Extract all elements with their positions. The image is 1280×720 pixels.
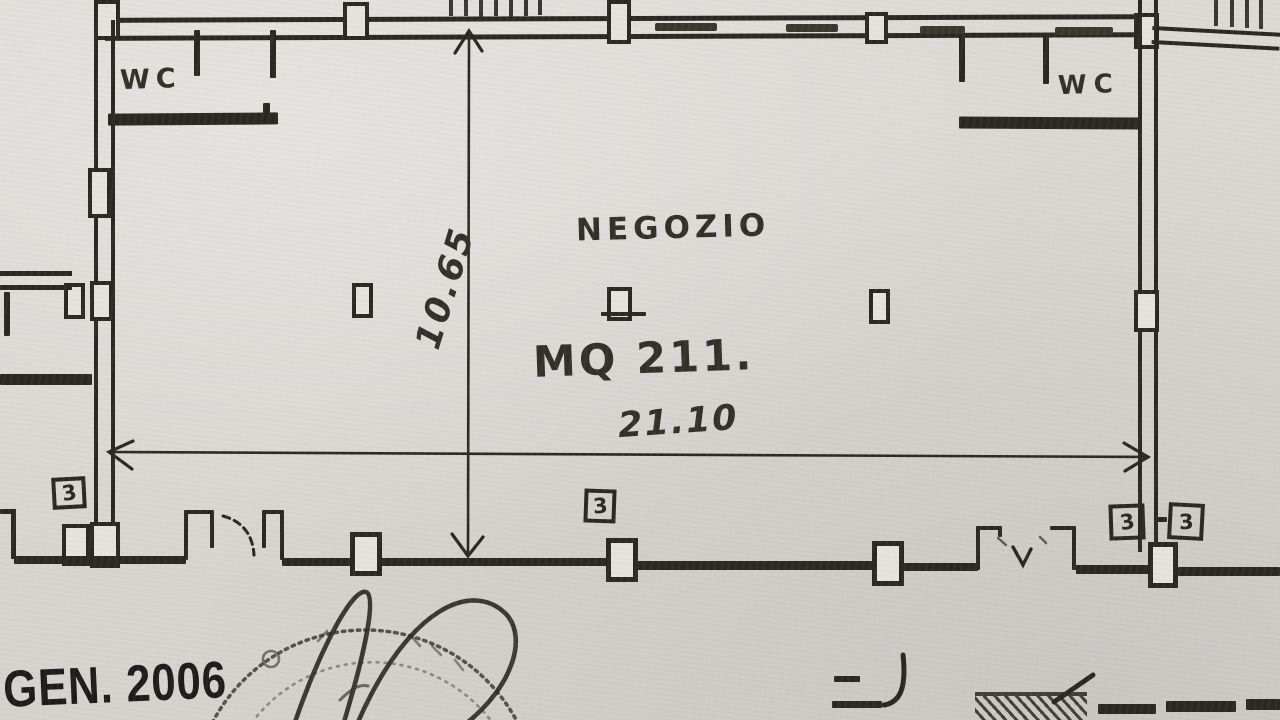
- floorplan-scan: 3 3 3 3: [0, 0, 1280, 720]
- fragment-bar: [832, 701, 882, 708]
- marker-label: 3: [60, 480, 78, 506]
- top-wall-window-dash: [920, 26, 965, 34]
- door-pier: [976, 528, 980, 570]
- marker-box-3: 3: [583, 488, 616, 523]
- interior-pillar: [869, 289, 890, 324]
- wc-left-partition-notch: [263, 103, 270, 115]
- door-swing-arc: [223, 516, 254, 555]
- hatch-tick: [524, 0, 528, 16]
- door-pier: [210, 512, 214, 548]
- hatch-tick: [1230, 0, 1234, 27]
- door-pier: [262, 512, 266, 548]
- signature-flourish: [295, 592, 516, 720]
- fragment-hook: [884, 655, 904, 705]
- bottom-wall-step: [11, 509, 16, 559]
- hatch-tick: [449, 0, 453, 16]
- bottom-wall-segment: [282, 558, 608, 566]
- pillar: [350, 532, 382, 576]
- door-pier: [184, 512, 188, 560]
- bottom-wall-segment: [902, 563, 978, 571]
- top-wall-right-extension: [1152, 26, 1280, 51]
- fragment-dash: [1166, 701, 1236, 712]
- pillar: [865, 12, 888, 44]
- pillar: [607, 0, 631, 44]
- hatch-tick: [1259, 0, 1263, 29]
- wc-right-label: WC: [1057, 69, 1120, 101]
- marker-box-3: 3: [1108, 503, 1145, 540]
- room-label: NEGOZIO: [576, 207, 771, 248]
- door-pier: [998, 526, 1002, 537]
- adjacent-wall-left: [0, 271, 72, 290]
- adjacent-wall-bar: [0, 374, 92, 385]
- marker-box-3: 3: [51, 476, 87, 510]
- hatch-tick: [538, 0, 542, 15]
- wc-left-label: WC: [119, 63, 182, 96]
- door-pier: [1072, 528, 1076, 570]
- wc-right-partition: [959, 117, 1141, 130]
- pillar: [343, 2, 369, 40]
- pillar: [606, 538, 638, 582]
- marker-label: 3: [592, 494, 608, 519]
- bottom-wall-segment: [636, 561, 876, 570]
- marker-label: 3: [1178, 509, 1194, 534]
- interior-fixture-bar: [601, 312, 646, 316]
- pillar: [1148, 542, 1178, 588]
- interior-pillar: [352, 283, 373, 318]
- notary-stamp: [193, 630, 537, 720]
- wc-left-stub: [270, 30, 276, 78]
- top-wall-window-dash: [1055, 27, 1113, 35]
- pillar: [90, 281, 113, 321]
- wc-right-stub: [959, 36, 965, 82]
- marker-dash: [1157, 517, 1167, 522]
- fragment-dash: [1246, 699, 1280, 710]
- hatch-tick: [464, 0, 468, 16]
- pillar: [88, 168, 111, 218]
- double-door-mark: [998, 537, 1046, 565]
- width-dimension-label: 21.10: [617, 398, 740, 446]
- bottom-wall-segment: [1076, 565, 1150, 574]
- marker-label: 3: [1118, 509, 1136, 535]
- date-stamp: GEN. 2006: [2, 650, 228, 720]
- bottom-wall-segment: [14, 556, 186, 564]
- wc-right-stub: [1043, 36, 1049, 84]
- door-pier: [280, 512, 284, 560]
- wc-left-partition: [108, 112, 278, 125]
- pillar: [1134, 290, 1159, 332]
- fragment-dash: [1098, 704, 1156, 714]
- hatch-tick: [509, 0, 513, 17]
- fragment-bar: [834, 676, 860, 682]
- top-wall-window-dash: [786, 24, 838, 32]
- adjacent-wall-stub: [4, 292, 10, 336]
- bottom-wall-segment: [1178, 567, 1280, 576]
- fragment-hatched-box: [975, 692, 1087, 720]
- hatch-tick: [494, 0, 498, 16]
- top-wall-window-dash: [655, 23, 717, 31]
- hatch-tick: [1214, 0, 1218, 26]
- right-wall: [1138, 0, 1158, 552]
- wc-left-stub: [194, 30, 200, 76]
- hatch-tick: [1245, 0, 1249, 28]
- height-dimension-label: 10.65: [408, 222, 483, 354]
- area-label: MQ 211.: [532, 330, 755, 388]
- hatch-tick: [479, 0, 483, 17]
- pillar: [872, 541, 904, 586]
- marker-box-3: 3: [1167, 502, 1205, 541]
